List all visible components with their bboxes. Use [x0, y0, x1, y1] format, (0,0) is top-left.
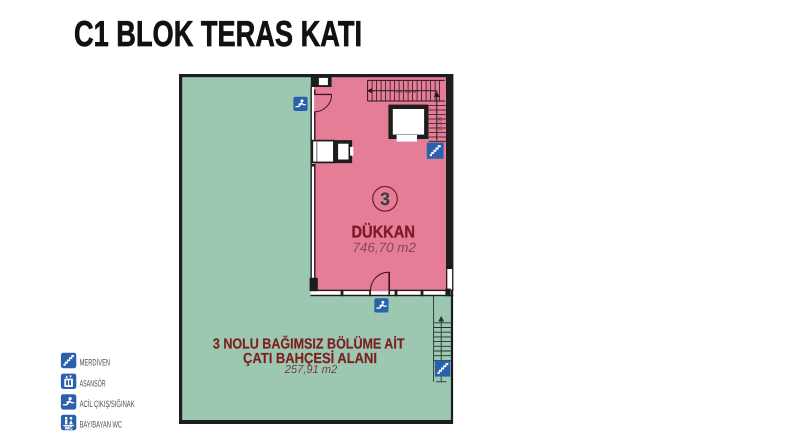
svg-text:ASANSÖR: ASANSÖR	[80, 378, 106, 388]
svg-text:16x16,3/28: 16x16,3/28	[396, 89, 417, 94]
svg-text:DÜKKAN: DÜKKAN	[351, 223, 415, 242]
svg-text:WC: WC	[65, 426, 74, 432]
svg-text:MERDİVEN: MERDİVEN	[80, 358, 111, 368]
svg-text:3: 3	[380, 189, 390, 209]
svg-text:746,70 m2: 746,70 m2	[352, 240, 416, 255]
svg-text:257,91 m2: 257,91 m2	[284, 364, 338, 376]
svg-text:BAY/BAYAN WC: BAY/BAYAN WC	[80, 420, 123, 430]
svg-text:ACİL ÇIKIŞ/SIĞINAK: ACİL ÇIKIŞ/SIĞINAK	[80, 399, 136, 409]
svg-text:C1 BLOK TERAS KATI: C1 BLOK TERAS KATI	[74, 13, 362, 54]
svg-text:16,3/28: 16,3/28	[438, 116, 443, 131]
